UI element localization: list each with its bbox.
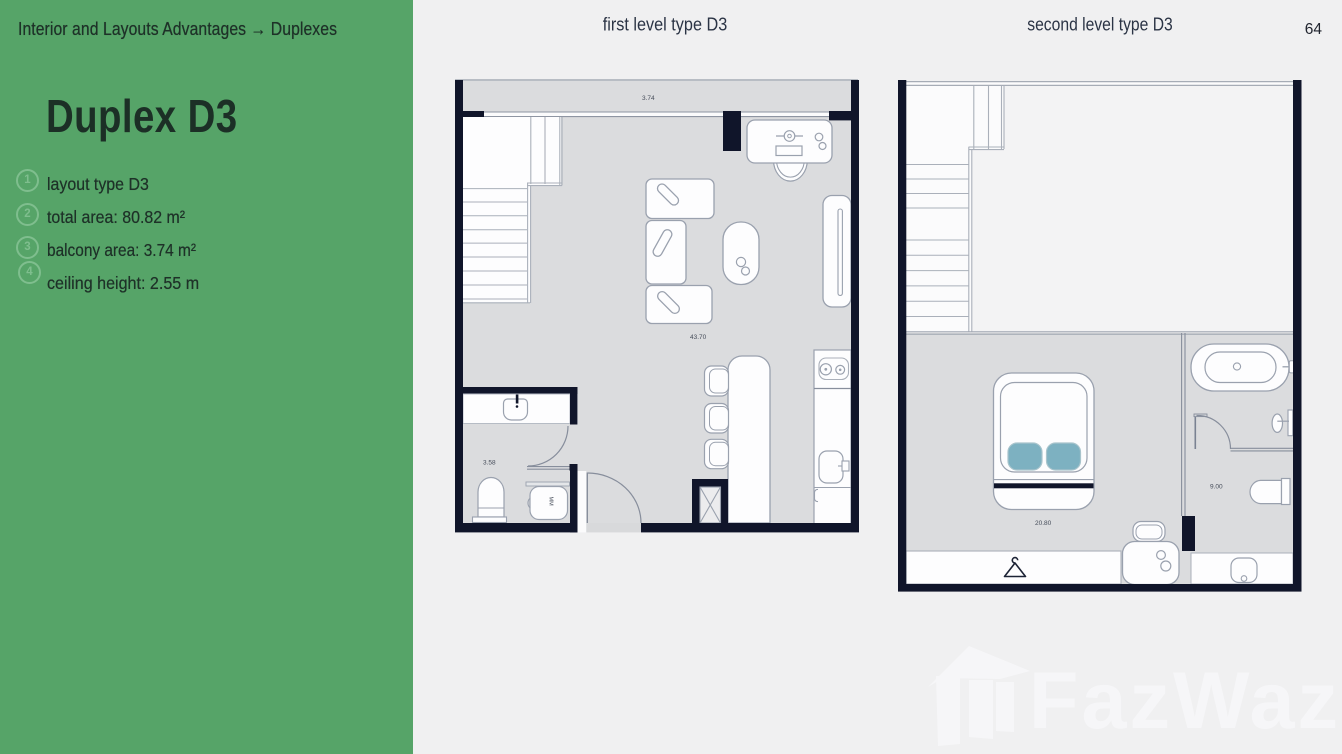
svg-text:20.80: 20.80	[1035, 520, 1052, 527]
svg-text:MM: MM	[548, 497, 554, 507]
svg-text:3.58: 3.58	[483, 460, 496, 467]
svg-text:9.00: 9.00	[1210, 484, 1223, 491]
svg-text:43.70: 43.70	[690, 334, 707, 341]
svg-text:64: 64	[1305, 21, 1323, 38]
svg-text:second level type D3: second level type D3	[1027, 15, 1173, 35]
svg-text:FazWaz: FazWaz	[1029, 656, 1341, 746]
svg-text:3.74: 3.74	[642, 95, 655, 102]
svg-text:first level type D3: first level type D3	[603, 15, 728, 35]
